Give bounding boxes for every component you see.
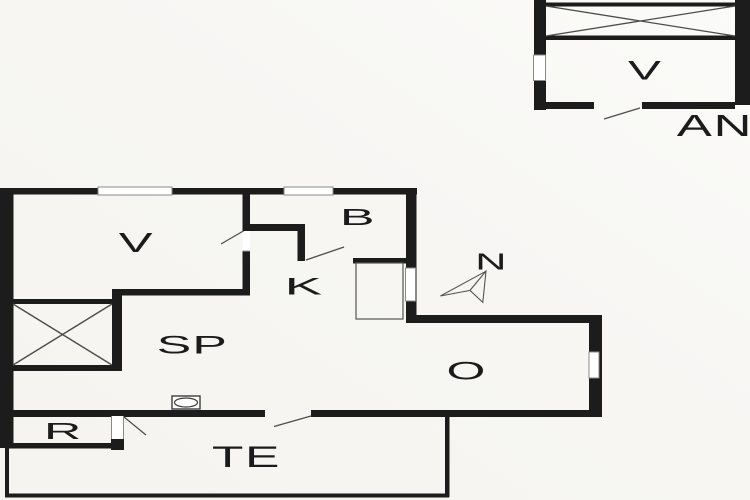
svg-text:O: O xyxy=(447,357,486,385)
svg-text:TE: TE xyxy=(212,440,281,473)
svg-text:SP: SP xyxy=(157,331,228,359)
svg-text:B: B xyxy=(340,204,375,230)
svg-text:N: N xyxy=(475,250,506,275)
svg-text:R: R xyxy=(44,418,82,444)
svg-text:AN: AN xyxy=(677,109,750,143)
svg-text:V: V xyxy=(119,227,154,258)
svg-text:K: K xyxy=(284,273,322,300)
svg-text:V: V xyxy=(628,56,662,86)
